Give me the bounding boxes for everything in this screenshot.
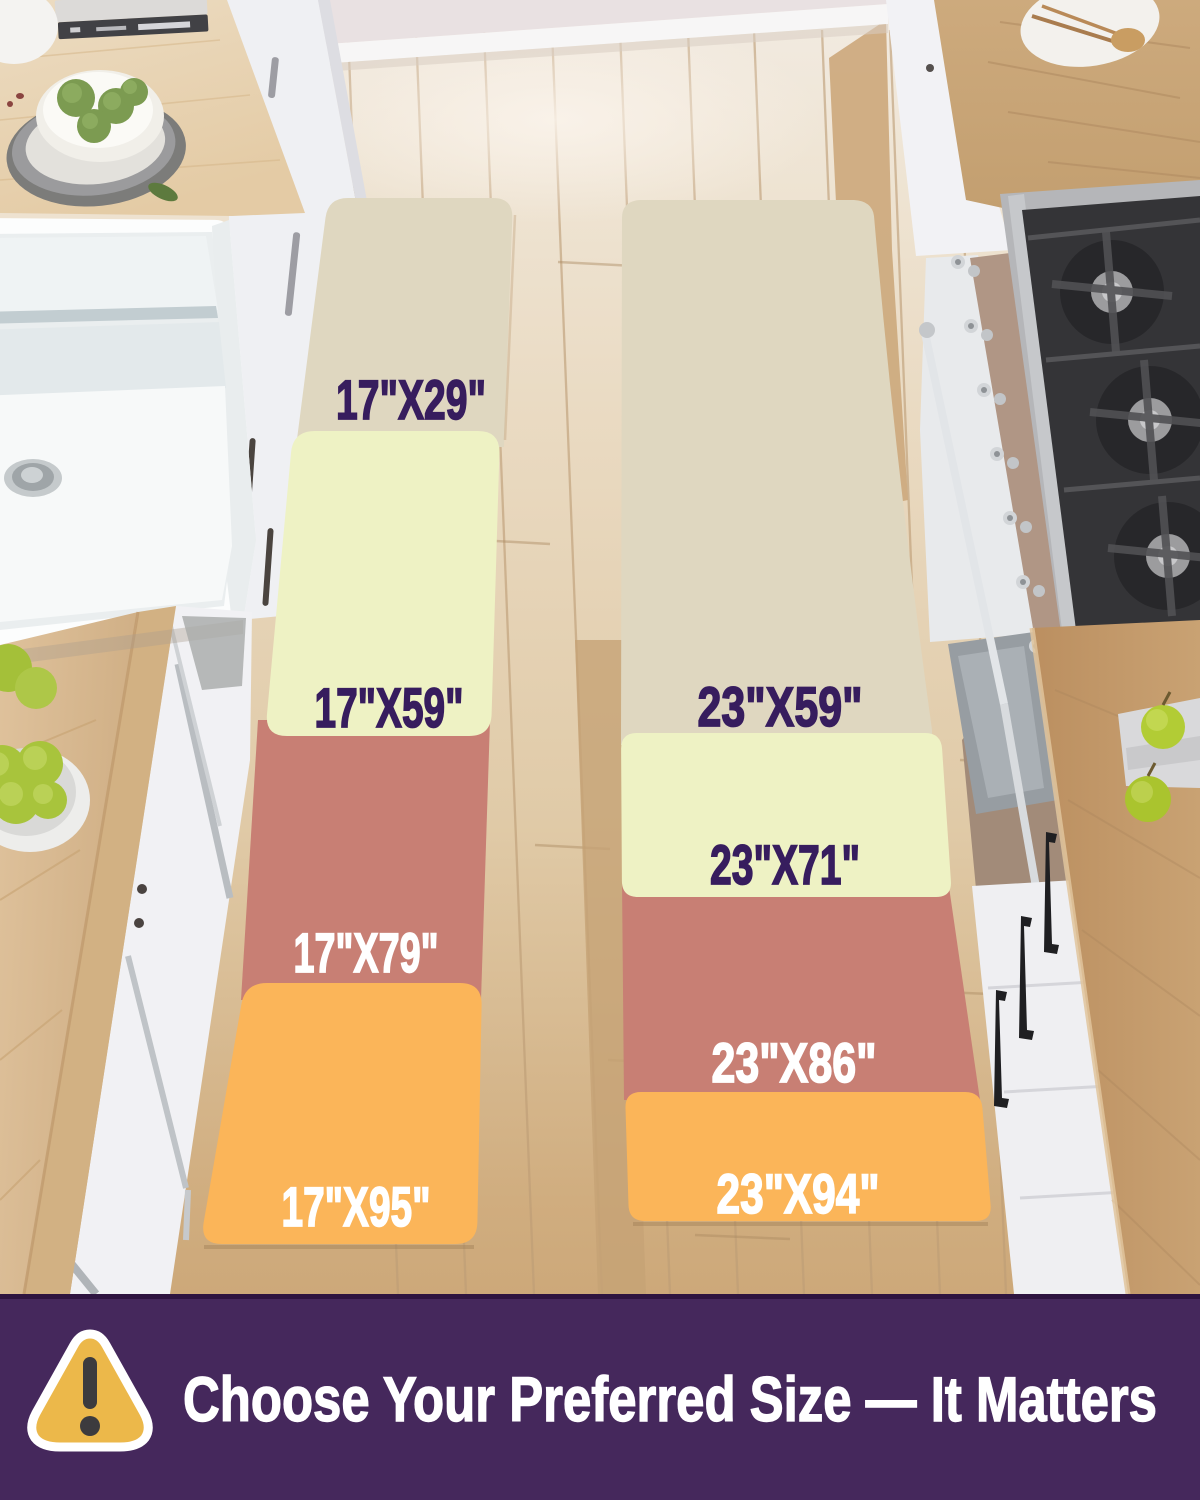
svg-text:17"X95": 17"X95" (282, 1175, 431, 1238)
svg-text:17"X29": 17"X29" (336, 368, 486, 431)
svg-text:23"X59": 23"X59" (698, 675, 863, 738)
svg-text:23"X94": 23"X94" (717, 1162, 880, 1225)
svg-text:17"X59": 17"X59" (315, 676, 464, 739)
svg-text:Choose Your Preferred Size — I: Choose Your Preferred Size — It Matters (183, 1365, 1157, 1435)
svg-text:23"X71": 23"X71" (710, 833, 860, 896)
svg-text:23"X86": 23"X86" (712, 1031, 877, 1094)
svg-text:17"X79": 17"X79" (294, 921, 439, 984)
